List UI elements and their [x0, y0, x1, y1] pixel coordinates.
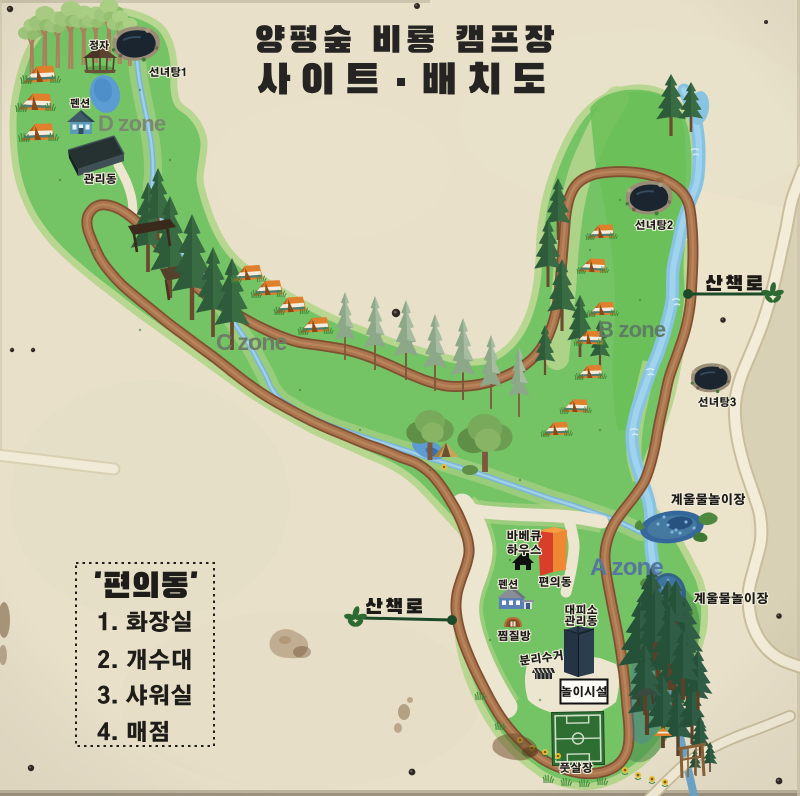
svg-text:C zone: C zone [216, 329, 287, 355]
svg-text:D zone: D zone [98, 111, 166, 136]
svg-text:A zone: A zone [590, 554, 663, 581]
svg-text:B zone: B zone [598, 317, 666, 342]
